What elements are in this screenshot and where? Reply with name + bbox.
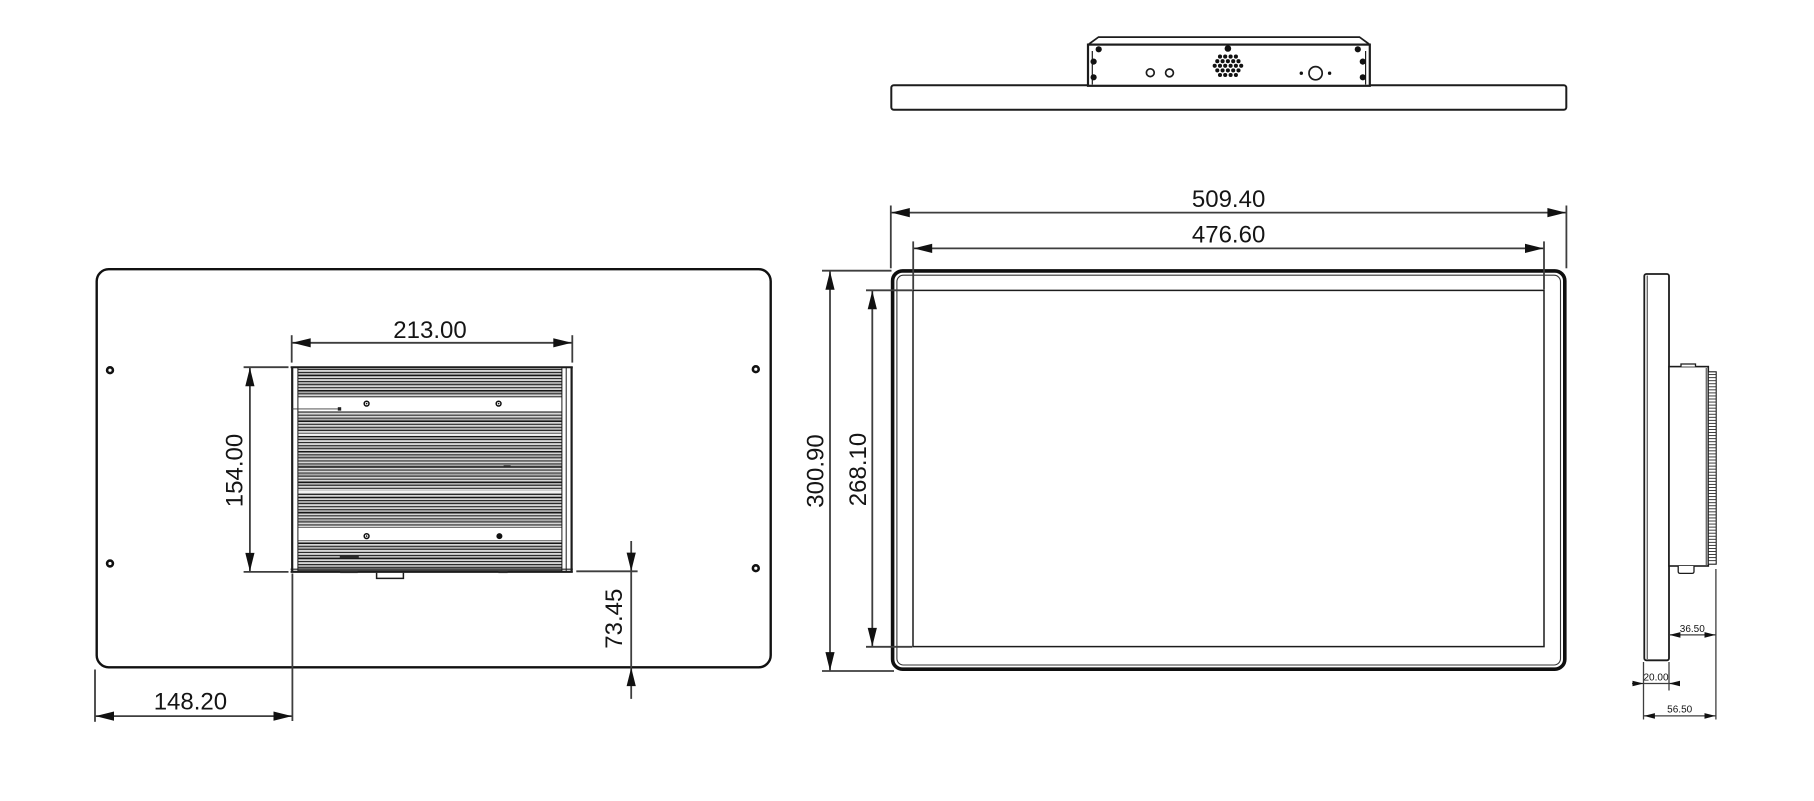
svg-text:268.10: 268.10	[845, 433, 872, 506]
svg-text:73.45: 73.45	[601, 589, 628, 649]
svg-text:509.40: 509.40	[1192, 186, 1265, 213]
svg-text:36.50: 36.50	[1680, 624, 1705, 635]
svg-text:476.60: 476.60	[1192, 222, 1265, 249]
svg-text:300.90: 300.90	[803, 434, 830, 507]
svg-text:20.00: 20.00	[1643, 672, 1668, 683]
svg-text:148.20: 148.20	[154, 689, 227, 716]
svg-text:154.00: 154.00	[221, 434, 248, 507]
svg-text:213.00: 213.00	[393, 317, 466, 344]
svg-text:56.50: 56.50	[1667, 705, 1692, 716]
